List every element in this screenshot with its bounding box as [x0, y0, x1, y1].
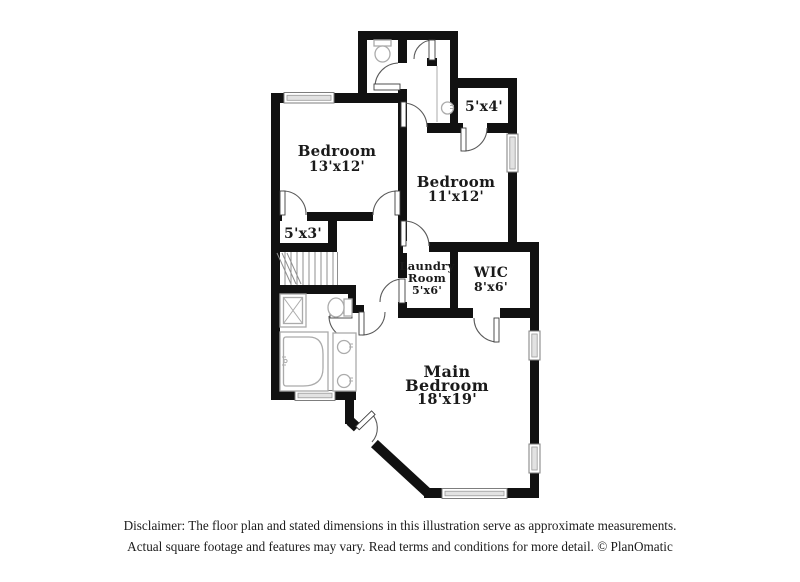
shower-icon	[280, 294, 306, 327]
closet-5x4-dims: 5'x4'	[465, 99, 503, 115]
bathtub-icon	[280, 332, 328, 391]
laundry-dims: 5'x6'	[412, 284, 442, 297]
disclaimer-line-2: Actual square footage and features may v…	[0, 537, 800, 558]
bedroom-13x12-dims: 13'x12'	[309, 159, 365, 175]
door	[474, 318, 499, 342]
laundry-label-2: Room	[408, 271, 446, 285]
door	[374, 63, 400, 90]
window	[284, 93, 334, 104]
toilet-icon	[374, 40, 391, 62]
door	[359, 312, 385, 335]
window	[295, 391, 335, 401]
floor-plan-drawing: Bedroom 13'x12' Bedroom 11'x12' 5'x4' 5'…	[0, 0, 800, 582]
wic-dims: 8'x6'	[474, 279, 508, 294]
door	[380, 279, 405, 303]
window	[529, 331, 540, 360]
door	[414, 40, 435, 60]
disclaimer-line-1: Disclaimer: The floor plan and stated di…	[0, 516, 800, 537]
staircase-icon	[277, 252, 338, 285]
double-sink-vanity-icon	[333, 333, 356, 391]
window	[507, 134, 518, 172]
window	[529, 444, 540, 473]
window	[442, 489, 507, 499]
bedroom-13x12-label: Bedroom	[298, 142, 377, 160]
floor-plan-page: Bedroom 13'x12' Bedroom 11'x12' 5'x4' 5'…	[0, 0, 800, 582]
disclaimer: Disclaimer: The floor plan and stated di…	[0, 516, 800, 557]
bedroom-11x12-dims: 11'x12'	[428, 189, 484, 205]
closet-5x3-dims: 5'x3'	[284, 226, 322, 242]
main-bedroom-dims: 18'x19'	[417, 391, 477, 408]
toilet-icon	[328, 298, 352, 317]
